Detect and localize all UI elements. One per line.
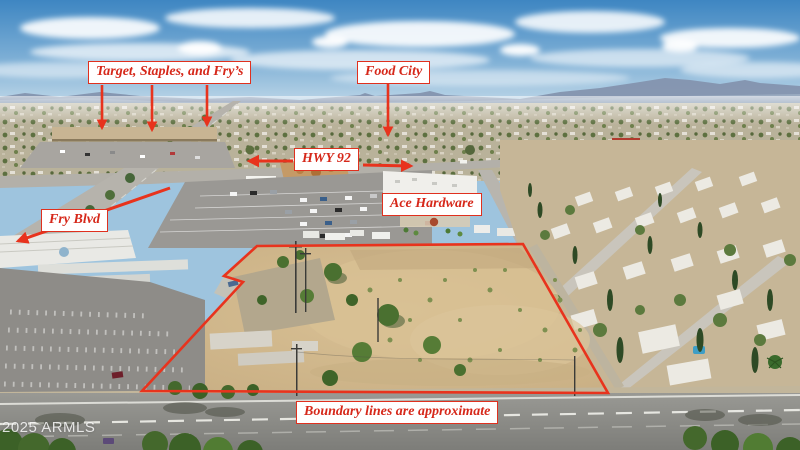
aerial-listing-photo: Target, Staples, and Fry’s Food City HWY… [0, 0, 800, 450]
label-target-staples-frys: Target, Staples, and Fry’s [88, 61, 251, 84]
left-plaza [20, 127, 235, 168]
water-tank [59, 247, 69, 257]
label-fry-blvd: Fry Blvd [41, 209, 108, 232]
front-parking-lot [0, 268, 205, 395]
label-hwy-92: HWY 92 [294, 148, 359, 171]
label-boundary-note: Boundary lines are approximate [296, 401, 498, 424]
label-ace-hardware: Ace Hardware [382, 193, 482, 216]
label-food-city: Food City [357, 61, 430, 84]
left-foreground-commercial [0, 230, 205, 395]
concrete-slab [210, 330, 273, 349]
mls-watermark: 2025 ARMLS [2, 419, 95, 436]
patio-umbrella [430, 218, 438, 226]
car-on-road [103, 438, 114, 444]
